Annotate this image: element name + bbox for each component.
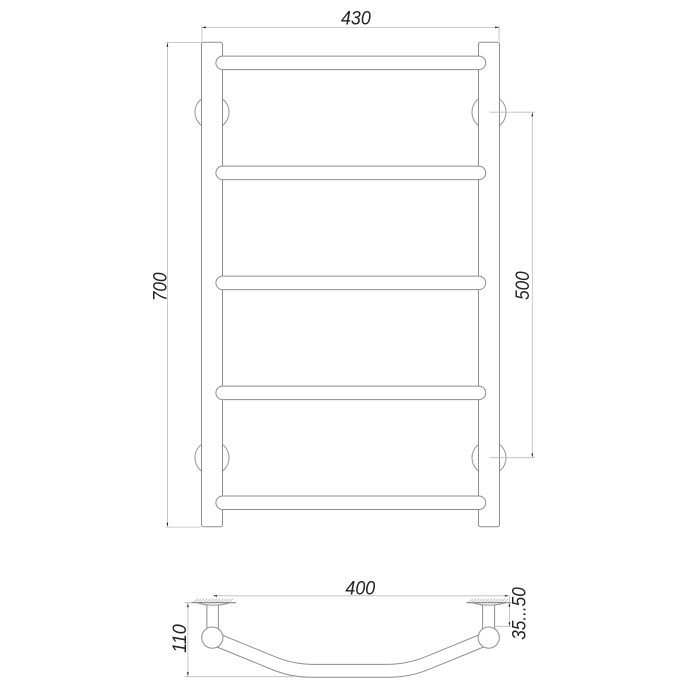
svg-text:500: 500	[513, 271, 534, 300]
svg-text:110: 110	[170, 624, 191, 653]
svg-text:430: 430	[341, 8, 371, 29]
svg-text:400: 400	[345, 578, 375, 599]
svg-text:700: 700	[150, 272, 171, 301]
svg-text:35...50: 35...50	[509, 587, 530, 640]
